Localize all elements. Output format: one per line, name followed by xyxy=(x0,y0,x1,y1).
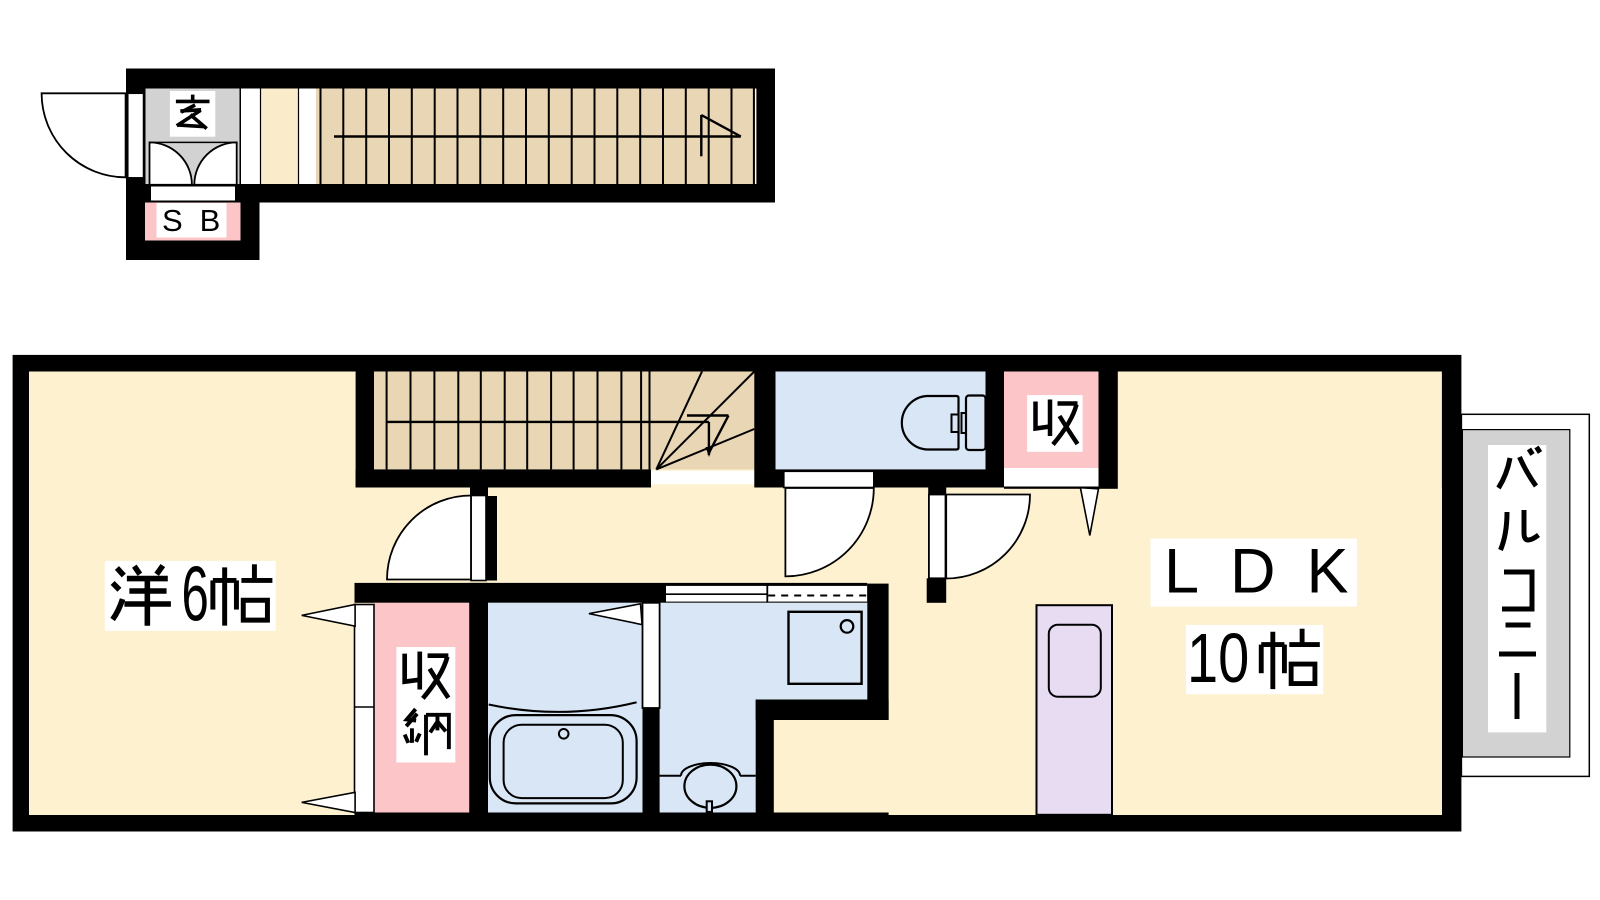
svg-text:LDK: LDK xyxy=(1164,537,1380,607)
svg-text:10: 10 xyxy=(1187,620,1249,697)
svg-text:SB: SB xyxy=(162,203,237,238)
svg-text:6: 6 xyxy=(182,549,209,636)
